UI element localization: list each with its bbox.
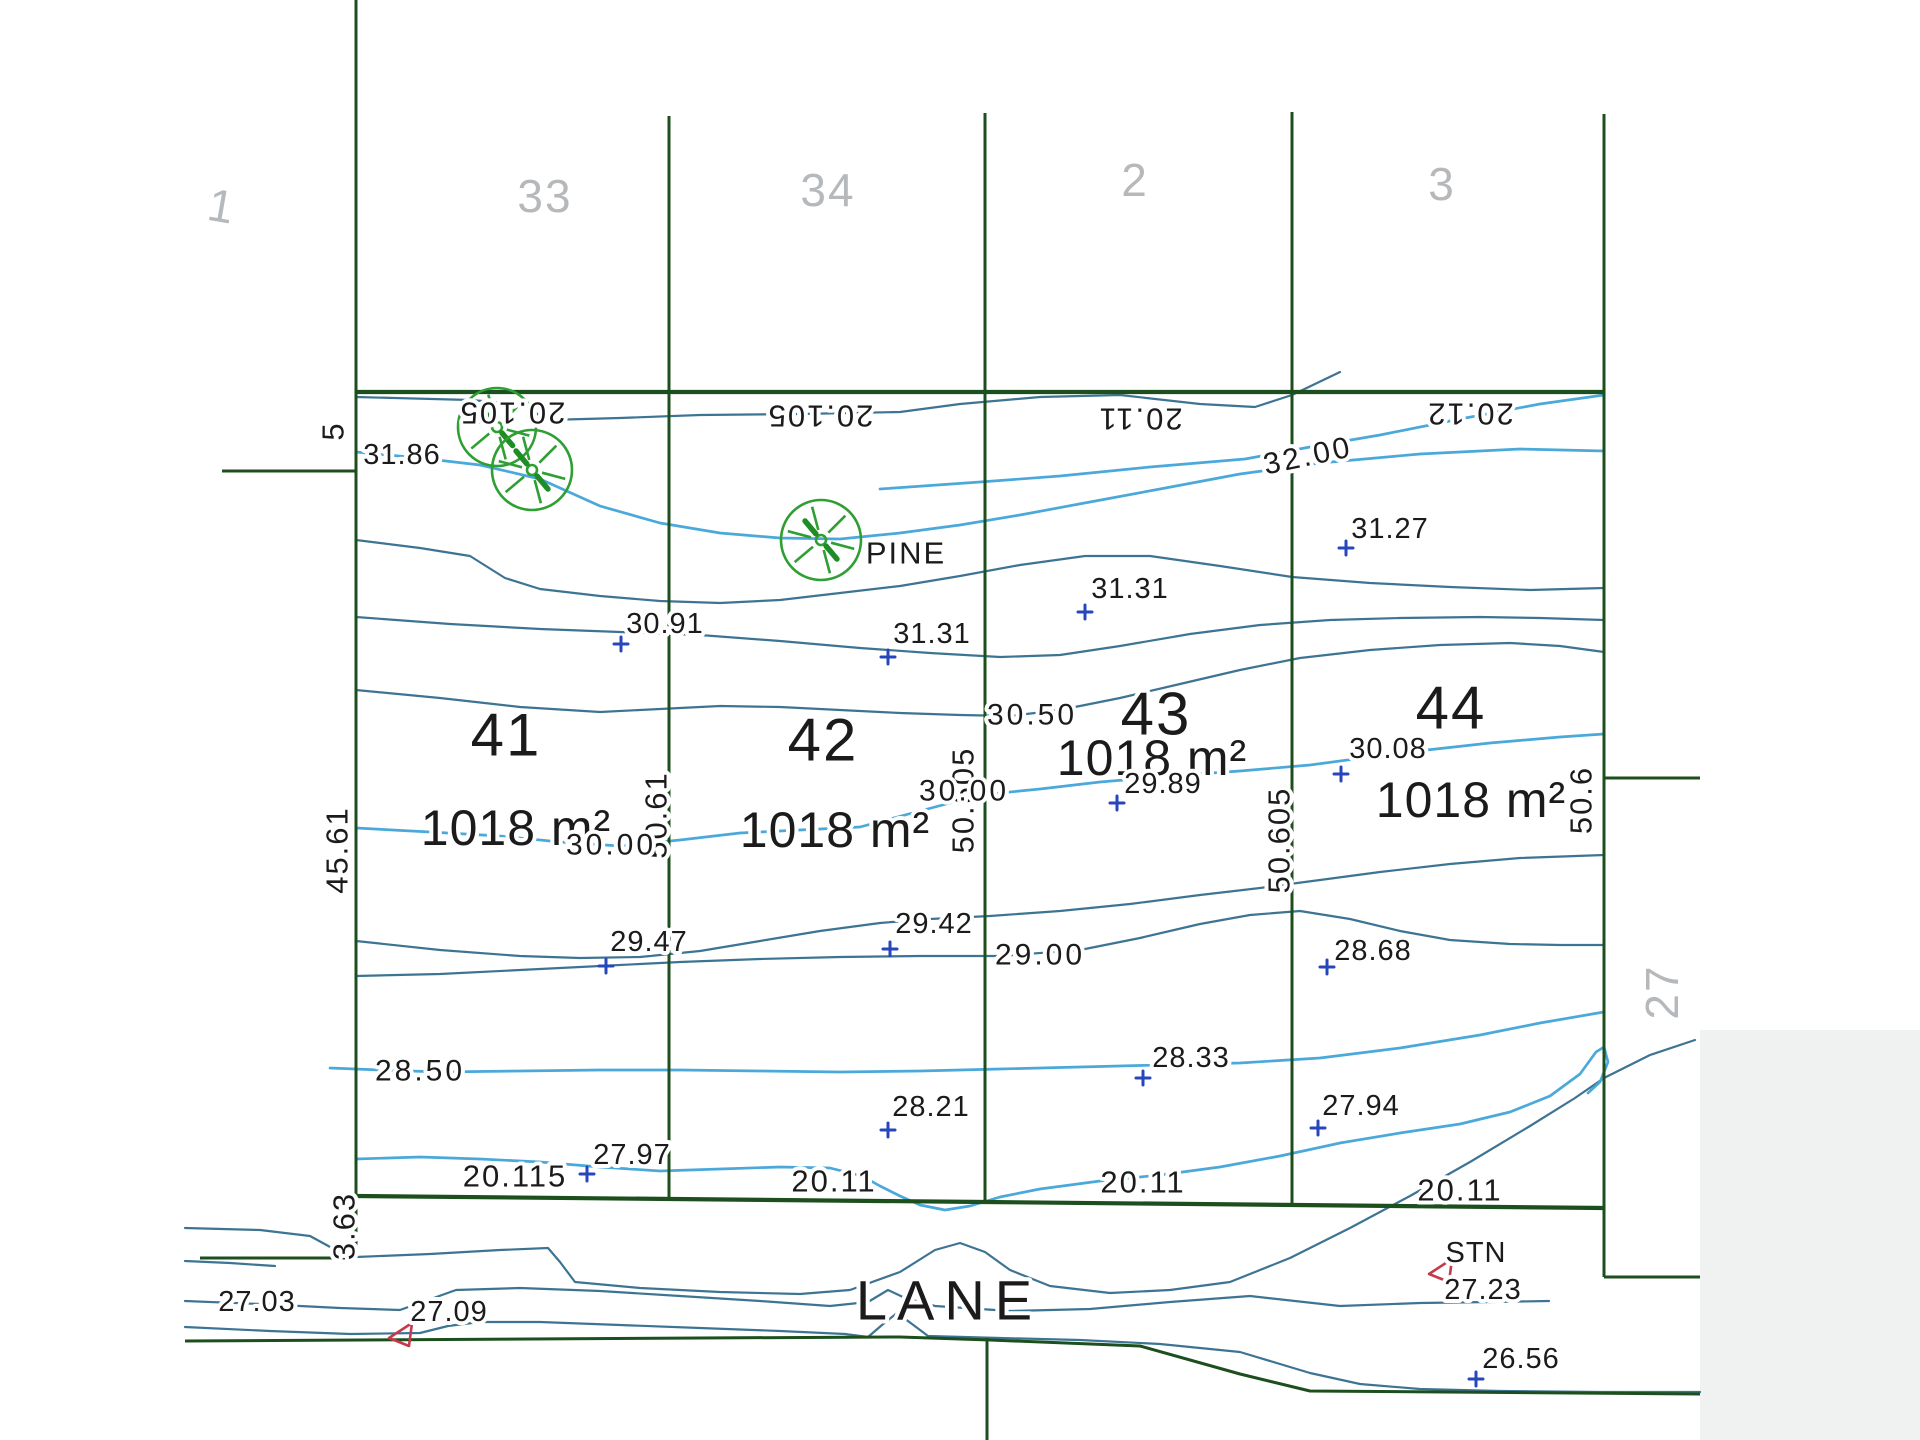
tree-spoke-icon	[506, 477, 524, 492]
spot-height-marker	[881, 1123, 895, 1137]
spot-height-label: 31.31	[1091, 573, 1169, 605]
dimension-label: 3.63	[327, 1192, 362, 1260]
contour-line-major	[330, 1012, 1604, 1072]
station-height-label: 27.09	[410, 1296, 488, 1328]
spot-height-label: 31.86	[363, 439, 441, 471]
lot-44-area: 1018 m²	[1376, 772, 1566, 828]
contour-line-minor	[356, 540, 1604, 603]
tree-spoke-icon	[828, 516, 845, 533]
faded-lot-number: 34	[800, 164, 855, 216]
spot-height-marker	[1469, 1372, 1483, 1386]
spot-height-marker	[1334, 767, 1348, 781]
contour-line-minor	[356, 911, 1604, 976]
dimension-label: 20.12	[1426, 397, 1514, 432]
dimension-label: 50.6	[1564, 766, 1599, 834]
tree-spoke-icon	[471, 434, 489, 449]
survey-plan-canvas: PINE133342327411018 m²421018 m²431018 m²…	[0, 0, 1920, 1440]
spot-height-label: 26.56	[1482, 1343, 1560, 1375]
contour-line-minor	[356, 617, 1604, 657]
spot-height-label: 28.33	[1152, 1042, 1230, 1074]
lot-42-number: 42	[788, 707, 859, 774]
spot-height-label: 30.08	[1349, 733, 1427, 765]
faded-lot-number: 27	[1636, 964, 1688, 1019]
spot-height-label: 27.97	[593, 1139, 671, 1171]
tree-branch-icon	[805, 521, 816, 534]
contour-elevation-label: 28.50	[375, 1055, 465, 1088]
lot-41-number: 41	[471, 702, 542, 769]
lot-42-area: 1018 m²	[740, 802, 930, 858]
spot-height-label: 28.68	[1334, 935, 1412, 967]
contour-line-minor	[356, 855, 1604, 958]
spot-height-label: 31.27	[1351, 513, 1429, 545]
spot-height-label: 31.31	[893, 618, 971, 650]
tree-branch-icon	[826, 546, 837, 559]
faded-lot-number: 3	[1428, 158, 1456, 210]
spot-height-label: 30.91	[626, 608, 704, 640]
contour-elevation-label: 30.00	[566, 829, 656, 862]
faded-lot-number: 2	[1121, 154, 1149, 206]
faded-lot-number: 33	[517, 170, 572, 222]
tree-spoke-icon	[539, 446, 556, 463]
spot-height-marker	[1136, 1071, 1150, 1085]
spot-height-marker	[881, 650, 895, 664]
spot-height-marker	[1320, 960, 1334, 974]
contour-elevation-label: 32.00	[1261, 430, 1356, 481]
tree-spoke-icon	[788, 531, 811, 537]
spot-height-label: 29.89	[1124, 768, 1202, 800]
lane-south-boundary	[185, 1337, 1700, 1394]
station-height-label: 27.23	[1444, 1274, 1522, 1306]
lot-44-number: 44	[1416, 675, 1487, 742]
dimension-label: 20.105	[459, 396, 566, 431]
contour-elevation-label: 30.00	[919, 775, 1009, 808]
spot-height-marker	[1078, 605, 1092, 619]
spot-height-marker	[883, 942, 897, 956]
contour-elevation-label: 29.00	[995, 939, 1085, 972]
pine-tree-label: PINE	[866, 536, 946, 571]
spot-height-marker	[580, 1167, 594, 1181]
dimension-label: 20.115	[463, 1159, 568, 1194]
dimension-label: 5	[316, 421, 351, 440]
scan-margin	[1700, 1030, 1920, 1440]
dimension-label: 45.61	[320, 806, 355, 894]
spot-height-marker	[1110, 796, 1124, 810]
dimension-label: 50.605	[1262, 787, 1297, 894]
tree-center-icon	[527, 465, 537, 475]
spot-height-label: 28.21	[892, 1091, 970, 1123]
tree-spoke-icon	[795, 547, 813, 562]
spot-height-label: 29.42	[895, 908, 973, 940]
dimension-label: 20.11	[791, 1164, 876, 1199]
spot-height-label: 27.94	[1322, 1090, 1400, 1122]
spot-height-marker	[1311, 1121, 1325, 1135]
contour-elevation-label: 30.50	[987, 699, 1077, 732]
lane-road-label: LANE	[856, 1269, 1042, 1332]
faded-lot-number: 1	[204, 178, 240, 234]
contour-line-minor	[185, 1261, 275, 1266]
tree-spoke-icon	[542, 473, 565, 479]
spot-height-marker	[599, 959, 613, 973]
station-label: STN	[1446, 1237, 1507, 1269]
spot-height-label: 29.47	[610, 926, 688, 958]
dimension-label: 20.11	[1100, 1165, 1185, 1200]
survey-plan-page: PINE133342327411018 m²421018 m²431018 m²…	[0, 0, 1920, 1440]
dimension-label: 20.11	[1417, 1173, 1502, 1208]
survey-station-marker	[389, 1323, 412, 1346]
tree-spoke-icon	[831, 543, 854, 549]
dimension-label: 20.11	[1097, 402, 1182, 437]
dimension-label: 20.105	[767, 399, 874, 434]
spot-height-label: 27.03	[218, 1286, 296, 1318]
